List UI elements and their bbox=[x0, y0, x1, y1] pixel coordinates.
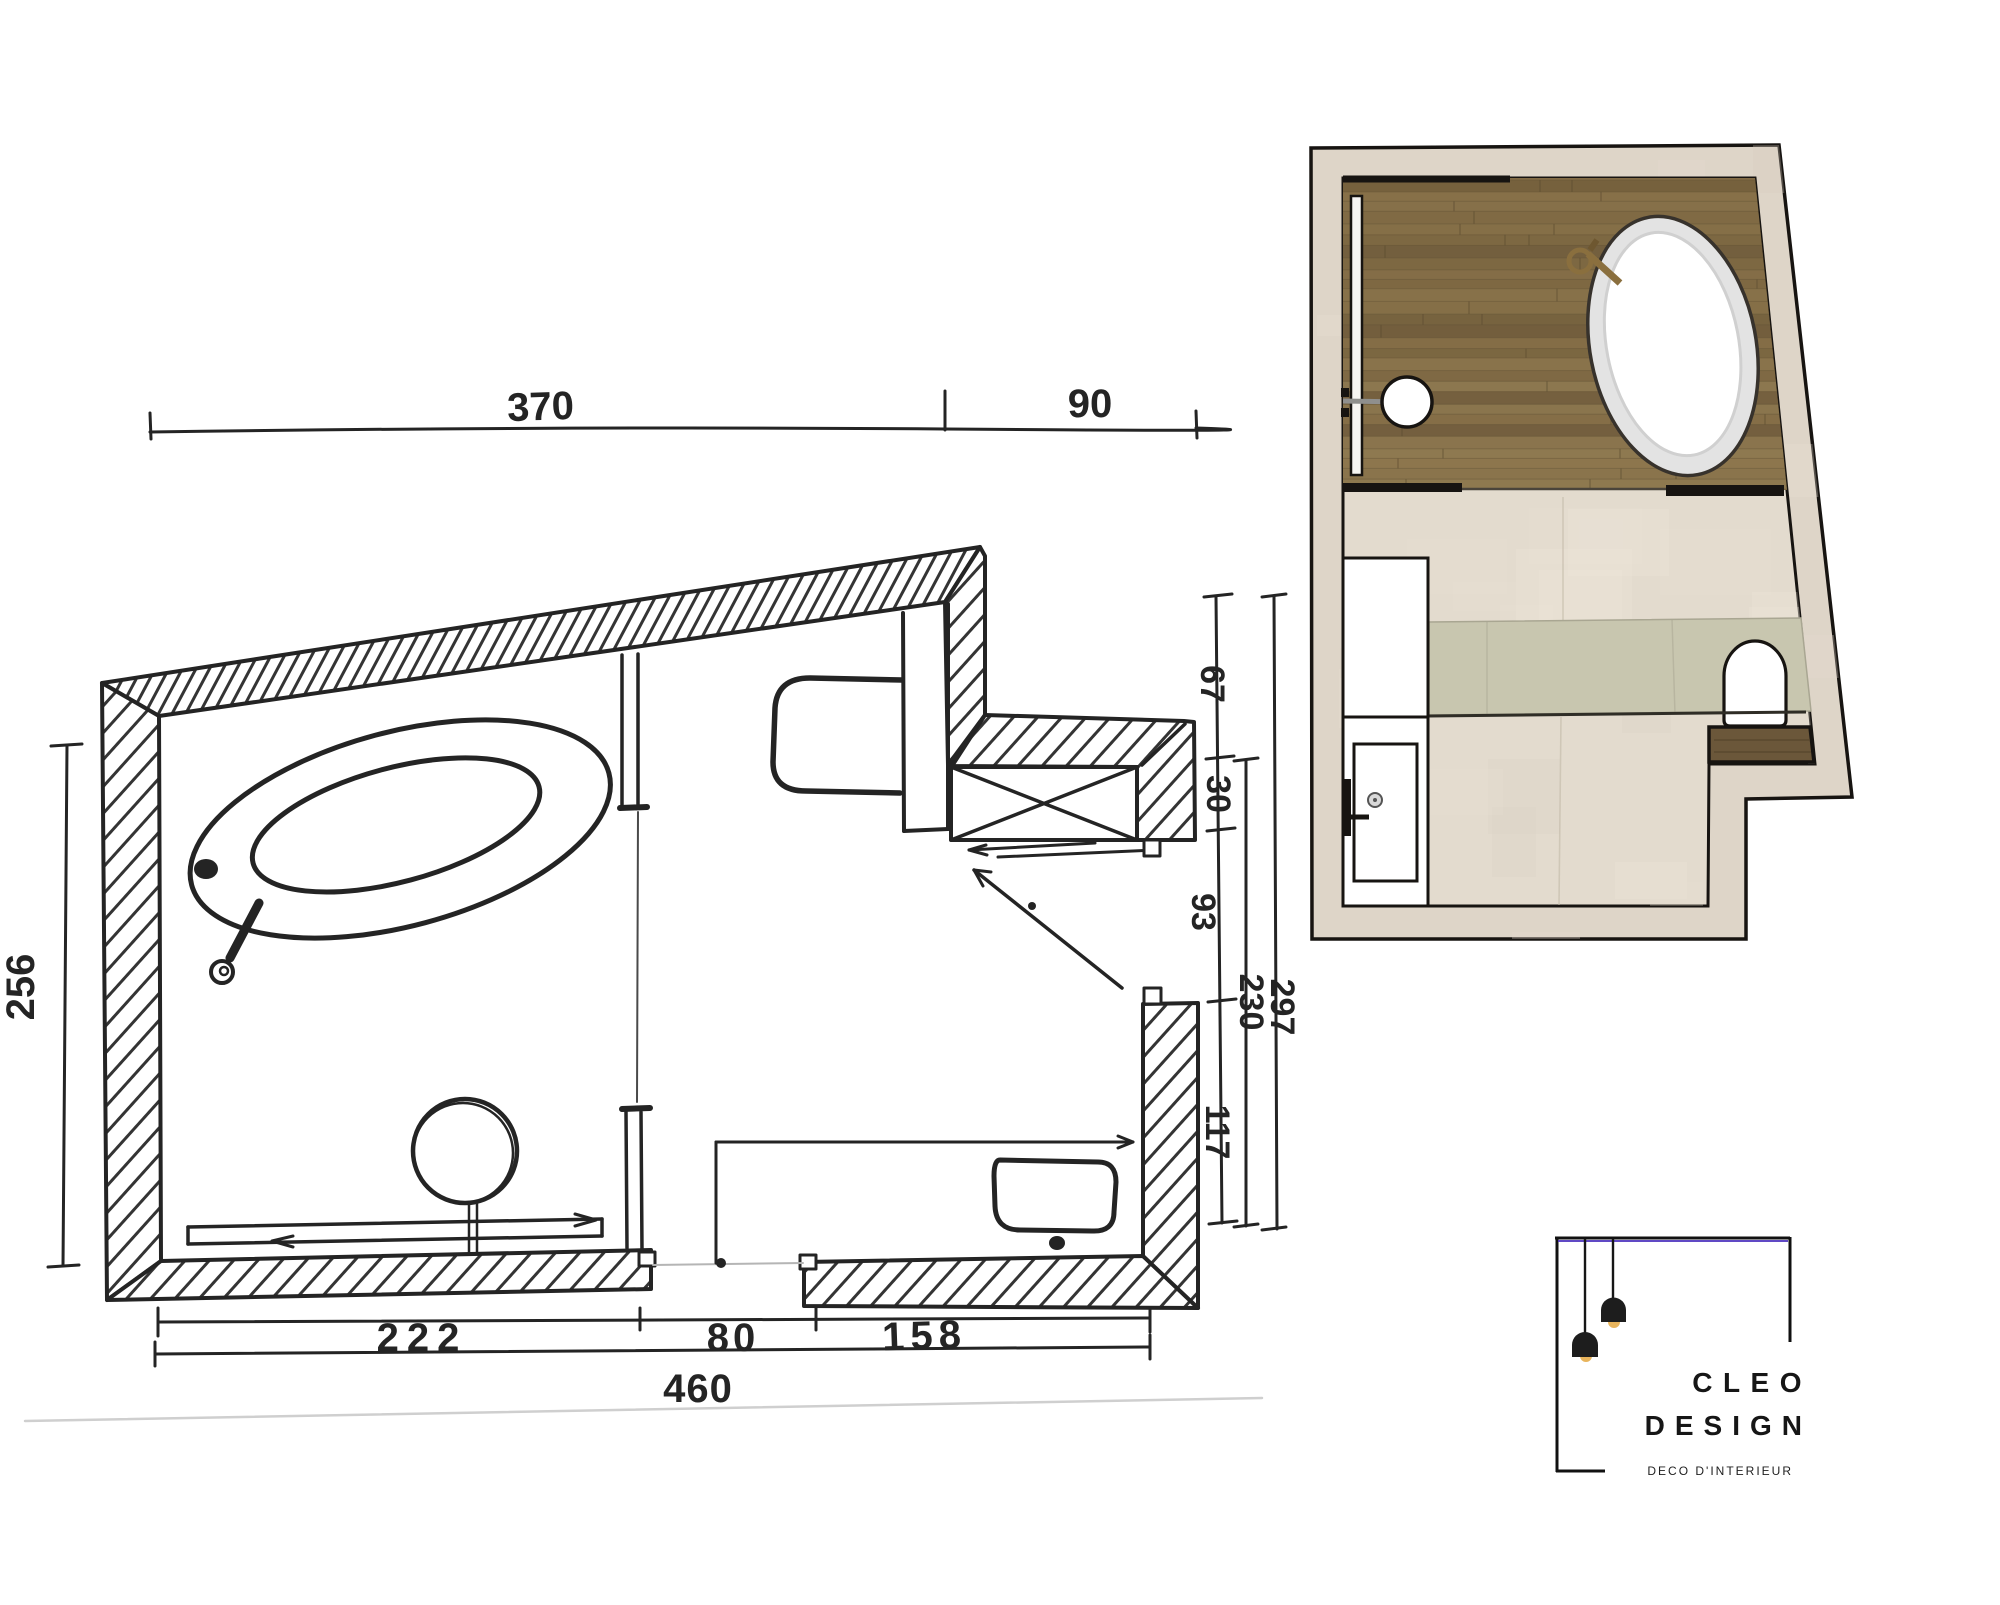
svg-text:93: 93 bbox=[1184, 893, 1222, 931]
svg-text:256: 256 bbox=[0, 954, 43, 1021]
svg-text:DESIGN: DESIGN bbox=[1645, 1410, 1812, 1441]
svg-text:CLEO: CLEO bbox=[1692, 1367, 1812, 1398]
svg-text:80: 80 bbox=[707, 1316, 760, 1360]
svg-text:90: 90 bbox=[1068, 382, 1113, 426]
svg-text:67: 67 bbox=[1193, 665, 1231, 703]
svg-text:460: 460 bbox=[663, 1367, 733, 1411]
svg-text:DECO D'INTERIEUR: DECO D'INTERIEUR bbox=[1647, 1464, 1793, 1478]
svg-text:117: 117 bbox=[1198, 1105, 1236, 1160]
svg-text:297: 297 bbox=[1263, 979, 1301, 1036]
svg-text:30: 30 bbox=[1199, 775, 1237, 813]
svg-text:370: 370 bbox=[506, 384, 574, 430]
svg-text:158: 158 bbox=[881, 1313, 967, 1360]
